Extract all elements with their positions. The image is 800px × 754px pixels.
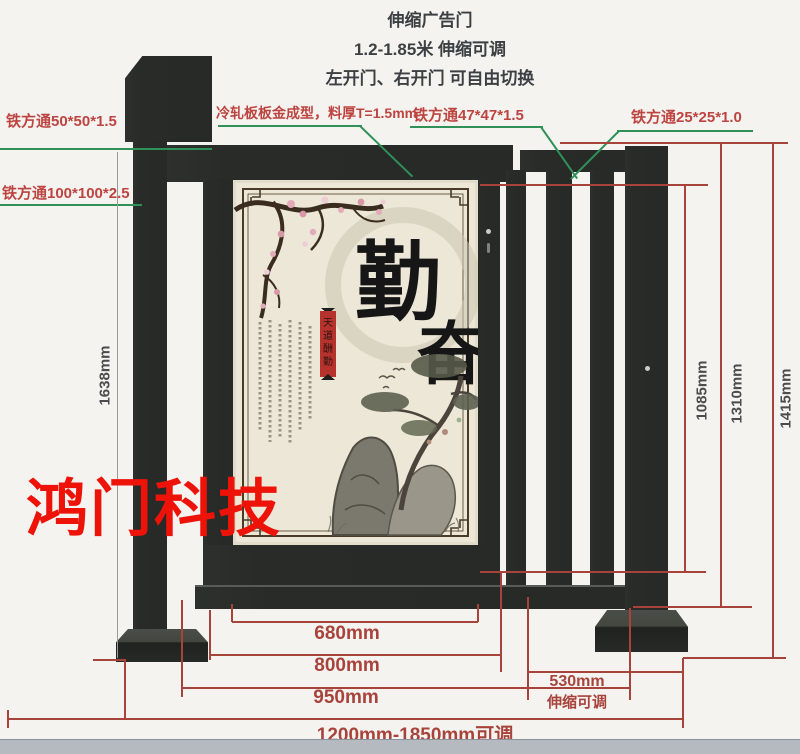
banner-char-1: 天 [323,318,333,329]
banner-char-4: 勤 [323,355,333,368]
dim-line-1085 [684,185,686,572]
dim-label-1638: 1638mm [97,341,114,411]
leader-line-tube25 [617,130,753,132]
banner-char-2: 道 [323,329,333,342]
dim-tick-800-left [209,610,211,660]
watermark-text: 鸿门科技 [26,458,282,548]
dim-label-1310: 1310mm [729,359,746,429]
callout-tube100: 铁方通100*100*2.5 [2,182,130,203]
telescopic-slat-2 [546,170,572,585]
dim-label-530: 530mm [527,673,627,691]
dim-tick-800-right [500,572,502,672]
ground-strip [0,739,800,754]
dim-label-800: 800mm [297,655,397,677]
dim-label-530-group: 530mm 伸缩可调 [527,673,627,712]
left-post [133,141,167,633]
bottom-sill [195,585,632,609]
dim-connector-top-right [560,142,788,144]
dim-pointer-left-foot [93,659,125,661]
dim-connector-1085-top [480,184,708,186]
right-post [625,146,668,628]
product-diagram: 伸缩广告门 1.2-1.85米 伸缩可调 左开门、右开门 可自由切换 [0,0,800,754]
title-line-product: 伸缩广告门 [300,6,560,35]
dim-line-1310 [720,143,722,607]
left-post-foot [116,629,208,662]
callout-cold-rolled: 冷轧板板金成型，料厚T=1.5mm [216,103,417,123]
dim-connector-1415-bottom [683,657,786,659]
dim-line-1638 [117,152,118,658]
telescopic-top-rail [520,150,632,172]
leader-line-tube47 [410,126,543,128]
leader-line-cold-rolled [218,125,362,127]
dim-tick-left-foot [124,659,126,719]
telescopic-slat-1 [506,170,526,585]
motor-housing [125,56,212,142]
leader-line-tube50 [0,148,212,150]
poster-banner: 天 道 酬 勤 [320,308,336,380]
dim-tick-950-left [181,600,183,697]
callout-tube25: 铁方通25*25*1.0 [631,106,742,127]
title-block: 伸缩广告门 1.2-1.85米 伸缩可调 左开门、右开门 可自由切换 [300,6,560,93]
door-bottom-rail [203,545,500,587]
dim-line-1415 [772,143,774,658]
telescopic-slat-3 [590,170,614,585]
dim-label-680: 680mm [297,623,397,645]
title-line-range: 1.2-1.85米 伸缩可调 [300,35,560,64]
door-keyhole [487,243,490,253]
door-top-rail [167,145,513,182]
door-lock-dot [486,229,491,234]
dim-connector-1085-bottom [480,571,706,573]
right-post-bolt [645,366,650,371]
dim-label-950: 950mm [296,687,396,709]
dim-tick-680-left [231,604,233,622]
title-line-switch: 左开门、右开门 可自由切换 [300,64,560,93]
dim-tick-range-left [7,710,9,728]
banner-char-3: 酬 [323,343,333,355]
leader-line-tube100 [0,204,142,206]
dim-label-1415: 1415mm [778,364,795,434]
callout-tube50: 铁方通50*50*1.5 [6,110,117,131]
dim-label-530-note: 伸缩可调 [527,691,627,712]
dim-tick-680-right [477,604,479,622]
callout-tube47: 铁方通47*47*1.5 [413,104,524,125]
dim-label-1085: 1085mm [694,356,711,426]
dim-connector-1310-bottom [633,606,752,608]
right-post-foot [595,610,688,652]
dim-tick-950-right [629,608,631,700]
